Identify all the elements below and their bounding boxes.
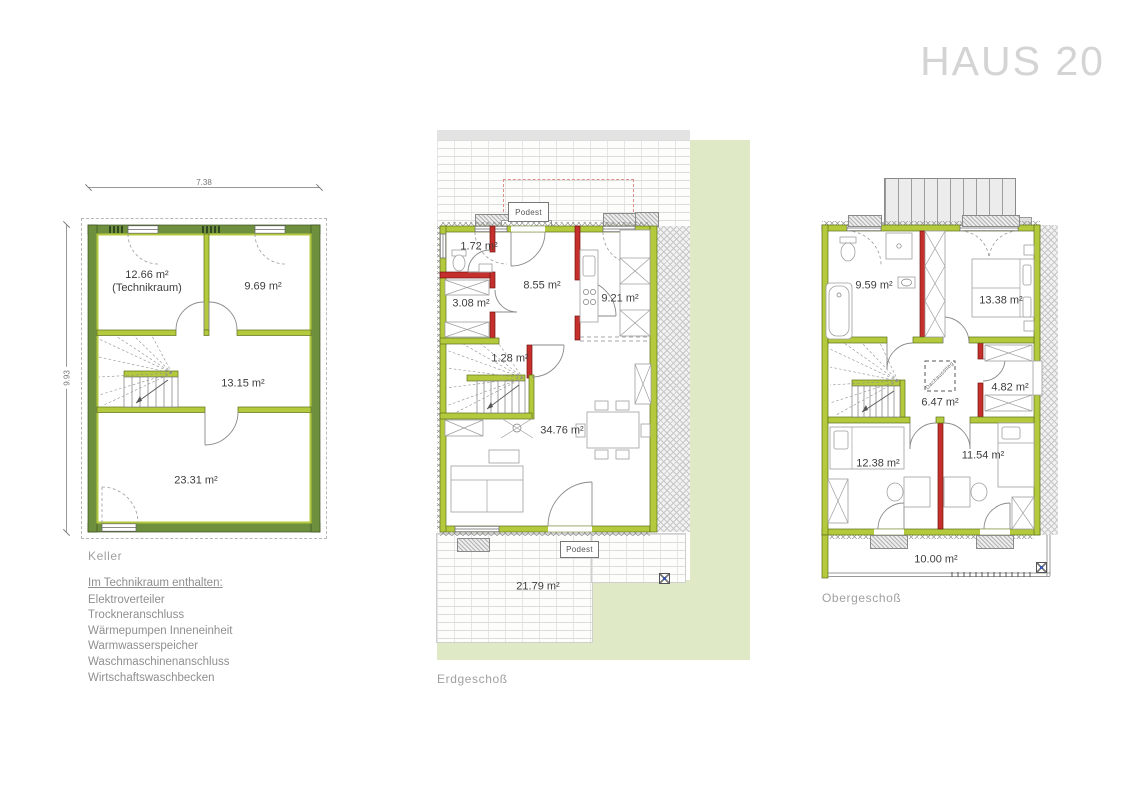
- room-label-terrasse: 21.79 m²: [516, 581, 559, 594]
- room-label-abstellraum: 3.08 m²: [452, 298, 489, 311]
- floor-label-erdgeschoss: Erdgeschoß: [437, 672, 508, 686]
- room-label-og-flur: 6.47 m²: [921, 397, 958, 410]
- notes-item: Trockneranschluss: [88, 608, 232, 624]
- technikraum-notes: Im Technikraum enthalten: Elektroverteil…: [88, 576, 232, 686]
- floorplan-sheet: HAUS 20 7.38 9.93: [0, 0, 1140, 806]
- window-sill: [962, 215, 1020, 227]
- erdgeschoss-plan: Podest: [437, 130, 750, 660]
- insulation-ticks: [440, 222, 650, 226]
- insulation-ticks: [437, 226, 440, 532]
- floor-label-obergeschoss: Obergeschoß: [822, 591, 901, 605]
- room-label-keller2: 9.69 m²: [244, 281, 281, 294]
- room-label-wohnen: 34.76 m²: [540, 425, 583, 438]
- dimension-line-height: 9.93: [66, 225, 67, 532]
- notes-item: Wärmepumpen Inneneinheit: [88, 624, 232, 640]
- dimension-line-width: 7.38: [88, 187, 320, 188]
- balcony-door-sill: [976, 535, 1014, 549]
- drain-symbol-icon: [1036, 562, 1047, 573]
- room-label-bad: 9.59 m²: [855, 280, 892, 293]
- room-label-garderobe: 1.28 m²: [491, 353, 528, 366]
- obergeschoss-plan: Dachausstieg 9.59 m² 13.38 m² 6.47 m² 4.…: [822, 165, 1058, 605]
- insulation-ticks: [440, 532, 650, 536]
- room-label-keller4: 23.31 m²: [174, 475, 217, 488]
- dimension-width-value: 7.38: [193, 178, 215, 187]
- eg-kitchen-divider: [580, 337, 650, 341]
- room-label-kind1: 12.38 m²: [856, 458, 899, 471]
- notes-item: Warmwasserspeicher: [88, 639, 232, 655]
- dimension-height-value: 9.93: [63, 367, 72, 389]
- keller-plan: 12.66 m² (Technikraum) 9.69 m² 13.15 m² …: [88, 225, 320, 532]
- podest-label-bottom: Podest: [560, 541, 599, 558]
- room-label-balkon: 10.00 m²: [914, 554, 957, 567]
- room-label-schlafen: 13.38 m²: [979, 295, 1022, 308]
- drain-symbol-icon: [659, 573, 670, 584]
- room-label-flur: 8.55 m²: [523, 280, 560, 293]
- page-title: HAUS 20: [920, 38, 1105, 85]
- room-label-technikraum: 12.66 m² (Technikraum): [112, 269, 182, 295]
- notes-heading: Im Technikraum enthalten:: [88, 576, 232, 592]
- room-label-kind2: 11.54 m²: [962, 450, 1005, 463]
- notes-item: Elektroverteiler: [88, 593, 232, 609]
- room-label-keller3: 13.15 m²: [221, 378, 264, 391]
- room-label-kueche: 9.21 m²: [601, 293, 638, 306]
- notes-item: Waschmaschinenanschluss: [88, 655, 232, 671]
- floor-label-keller: Keller: [88, 549, 122, 563]
- window-sill: [848, 215, 882, 227]
- room-label-og-abstell: 4.82 m²: [991, 382, 1028, 395]
- room-label-wc: 1.72 m²: [460, 241, 497, 254]
- eg-drawing: [437, 130, 750, 660]
- notes-item: Wirtschaftswaschbecken: [88, 671, 232, 687]
- balcony-door-sill: [870, 535, 908, 549]
